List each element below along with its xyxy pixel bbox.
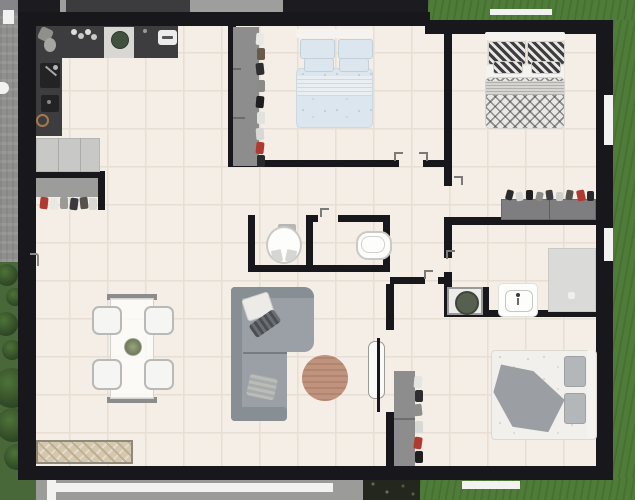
hanging-clothes — [257, 155, 265, 167]
burner — [111, 31, 129, 49]
hanging-clothes — [89, 198, 97, 210]
bed2-headboard — [485, 32, 565, 40]
wall-wc-middle — [306, 215, 313, 272]
outside-white-object — [3, 10, 14, 24]
bed3-headboard — [587, 350, 595, 438]
hanging-clothes — [256, 33, 265, 46]
toilet-2-lid — [361, 236, 385, 253]
lawn-right — [613, 20, 635, 480]
counter-jar — [78, 33, 84, 39]
wc-2-door[interactable] — [320, 208, 329, 217]
wardrobe-divider — [394, 418, 415, 420]
hanging-clothes — [257, 80, 265, 92]
bedroom-1-door-jamb — [419, 152, 428, 161]
sink-faucet-dot — [516, 293, 520, 297]
floor-plan-canvas[interactable] — [0, 0, 635, 500]
round-rug[interactable] — [302, 355, 348, 401]
wardrobe-bedroom-1[interactable] — [233, 27, 259, 166]
fridge-divider — [58, 138, 59, 172]
hanging-clothes — [60, 197, 68, 209]
bed2-duvet-band — [486, 81, 564, 95]
walkway-white-vertical — [47, 480, 56, 500]
toilet-1[interactable] — [266, 226, 302, 264]
hanging-clothes — [413, 376, 422, 389]
bed2-pillow-small — [531, 61, 561, 74]
hanging-clothes — [255, 142, 264, 155]
hanging-clothes — [255, 96, 264, 109]
inset-knob — [47, 100, 51, 104]
top-grass-window-strip — [490, 9, 552, 15]
dresser-item — [545, 190, 553, 201]
bed3-pillow — [564, 393, 586, 424]
hanging-clothes — [415, 421, 423, 433]
fridge-cabinet[interactable] — [36, 138, 100, 172]
hanging-clothes — [413, 437, 423, 450]
hanging-clothes — [415, 390, 423, 402]
wall-wc-bottom — [248, 265, 390, 272]
counter-jar — [85, 29, 91, 35]
bed1-pillow — [338, 39, 373, 59]
fridge-divider — [80, 138, 81, 172]
hanging-clothes — [415, 451, 423, 463]
dresser-divider — [549, 199, 550, 220]
dining-chair[interactable] — [92, 359, 122, 390]
sofa-armrest — [231, 407, 287, 421]
wall-bedroom3-left-bottom — [386, 412, 394, 466]
faucet-head — [53, 65, 58, 70]
walkway-white-strip — [55, 483, 333, 492]
front-door-handle[interactable] — [30, 253, 39, 266]
washer-drum — [455, 291, 479, 315]
bathroom-door[interactable] — [446, 250, 455, 259]
lawn-bottom-right — [420, 478, 635, 500]
small-appliance-2[interactable] — [44, 38, 56, 52]
outer-wall-bottom — [18, 466, 613, 480]
wall-wc2-top-left — [306, 215, 318, 222]
sink-faucet-line — [517, 298, 519, 305]
outer-wall-top-left — [18, 12, 430, 26]
sideboard-herringbone[interactable] — [36, 440, 133, 464]
driveway-pavement — [0, 0, 18, 262]
wall-entry-closet-top — [36, 171, 105, 178]
hanging-clothes — [257, 112, 265, 124]
outer-wall-left — [18, 12, 36, 480]
appliance-slot — [162, 36, 173, 39]
right-wall-window-top[interactable] — [604, 95, 613, 145]
planting-bed-dark — [363, 478, 420, 500]
wall-wc1-left — [248, 215, 255, 272]
hanging-clothes — [413, 404, 422, 417]
wardrobe-shelf-tick — [233, 117, 245, 119]
counter-jar — [71, 29, 77, 35]
right-wall-window-middle[interactable] — [604, 228, 613, 261]
wall-bathroom-stub — [483, 287, 489, 317]
dresser-item — [556, 192, 563, 201]
hanging-clothes — [257, 48, 265, 60]
wall-bedroom2-left — [444, 26, 452, 186]
bed1-headboard — [296, 29, 373, 38]
hanging-clothes — [79, 197, 88, 210]
bottom-wall-window[interactable] — [462, 481, 520, 489]
kitchen-knob-ring — [36, 114, 49, 127]
wall-bedroom3-left-top — [386, 284, 394, 330]
entry-closet-shelf[interactable] — [36, 178, 98, 197]
hanging-clothes — [69, 198, 78, 211]
hall-door[interactable] — [424, 270, 433, 279]
sofa-back-top — [231, 287, 314, 298]
wall-entry-closet-right — [98, 171, 105, 210]
sofa-back-left — [231, 287, 242, 421]
hanging-clothes — [255, 63, 264, 76]
counter-dot — [143, 29, 147, 33]
bed1-duvet-band — [297, 76, 372, 96]
bed1-pillow-small — [304, 58, 334, 72]
bedroom-1-door[interactable] — [394, 152, 403, 161]
hanging-clothes — [39, 197, 48, 210]
dresser-item — [587, 191, 594, 201]
bedroom-2-door[interactable] — [454, 176, 463, 185]
bedroom-3-door-leaf[interactable] — [377, 338, 380, 412]
wardrobe-shelf-tick — [233, 68, 241, 70]
dining-chair[interactable] — [144, 359, 174, 390]
wall-hall-left — [390, 277, 425, 284]
walk-in-shower[interactable] — [548, 248, 596, 312]
dining-chair[interactable] — [92, 306, 122, 335]
dresser-item — [515, 191, 523, 201]
bed1-pillow — [300, 39, 335, 59]
dining-chair[interactable] — [144, 306, 174, 335]
bed3-pillow — [564, 356, 586, 387]
flower-centerpiece[interactable] — [124, 338, 142, 356]
dresser-item — [526, 190, 533, 200]
counter-jar — [91, 34, 97, 40]
sofa-cushion-line — [243, 352, 287, 354]
hanging-clothes — [49, 198, 58, 211]
bed2-pillow-small — [493, 61, 523, 74]
hanging-clothes — [256, 128, 265, 141]
outside-dark-rectangle — [66, 0, 190, 12]
bed1-pillow-small — [339, 58, 369, 72]
shower-drain — [568, 292, 575, 299]
